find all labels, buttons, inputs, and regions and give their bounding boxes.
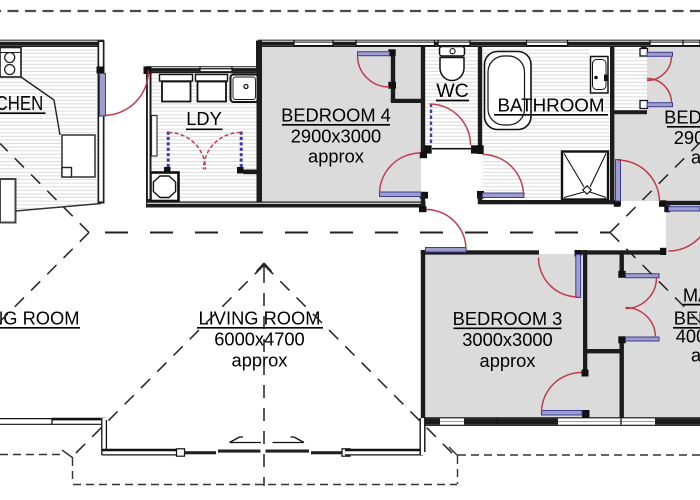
svg-text:BATHROOM: BATHROOM — [497, 95, 604, 116]
svg-text:MASTER: MASTER — [683, 285, 700, 306]
svg-text:LIVING ROOM: LIVING ROOM — [199, 308, 321, 329]
svg-text:3000x3000: 3000x3000 — [462, 329, 552, 350]
svg-text:4000x3000: 4000x3000 — [676, 326, 700, 347]
svg-text:WC: WC — [436, 80, 469, 102]
svg-text:DINING ROOM: DINING ROOM — [0, 308, 79, 329]
svg-text:approx: approx — [308, 146, 364, 167]
svg-text:2900x3000: 2900x3000 — [291, 126, 381, 147]
svg-text:approx: approx — [232, 350, 288, 371]
svg-text:KITCHEN: KITCHEN — [0, 91, 43, 114]
svg-text:LDY: LDY — [186, 108, 222, 129]
svg-text:BEDROOM 4: BEDROOM 4 — [281, 105, 391, 126]
svg-text:approx: approx — [691, 345, 700, 366]
svg-text:6000x4700: 6000x4700 — [214, 329, 304, 350]
svg-text:BEDROOM 2: BEDROOM 2 — [664, 107, 700, 128]
svg-text:BEDROOM 3: BEDROOM 3 — [453, 308, 563, 329]
svg-text:2900x3000: 2900x3000 — [674, 127, 700, 148]
svg-text:approx: approx — [480, 350, 536, 371]
